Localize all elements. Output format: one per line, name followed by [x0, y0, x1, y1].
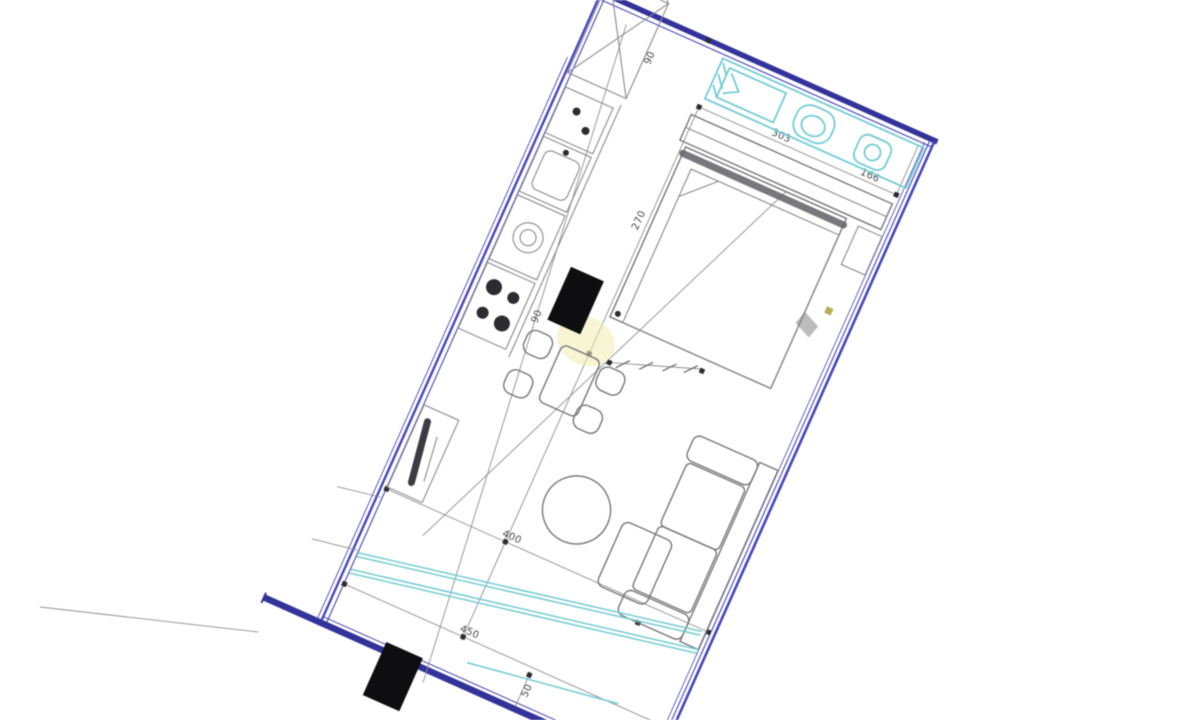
- dimension-label: 270: [630, 209, 648, 232]
- floor-plan-drawing: 303 166 90 270 90 400 450 50: [0, 0, 1200, 720]
- sofa-armrest: [685, 434, 760, 487]
- dimension-chain-vertical: [461, 107, 699, 641]
- node-dots: [338, 0, 932, 720]
- ottoman: [596, 520, 674, 606]
- duvet-fold: [679, 169, 719, 209]
- headboard-band: [683, 153, 844, 225]
- burner: [475, 305, 491, 321]
- bed-corner-dot: [614, 310, 622, 318]
- coffee-table-round: [532, 465, 622, 555]
- dining-chair: [521, 328, 556, 362]
- tv-console: [387, 405, 458, 503]
- wardrobe-cross: [568, 0, 696, 99]
- floor-plan-canvas: 303 166 90 270 90 400 450 50: [0, 0, 1200, 720]
- nightstand-outline: [841, 226, 882, 275]
- wall-tv: [402, 422, 436, 483]
- tv-cabinet: [387, 405, 458, 503]
- sofa-seat-cushion: [631, 525, 718, 614]
- dimension-line-400: [387, 489, 709, 632]
- fixture-detail: [862, 142, 883, 163]
- bed-side-flag: [792, 310, 821, 339]
- construction-line: [423, 114, 786, 614]
- bed-area: [603, 114, 896, 404]
- basin: [716, 68, 786, 122]
- node-dot: [383, 486, 390, 493]
- dining-chair: [570, 402, 605, 436]
- leader-line: [40, 607, 258, 632]
- double-bed: [610, 147, 863, 396]
- dimension-labels: 303 166 90 270 90 400 450 50: [387, 50, 889, 720]
- dimension-label: 90: [642, 50, 657, 67]
- burner: [483, 277, 504, 298]
- dimension-tick: [684, 362, 698, 377]
- structural-column-bottom: [363, 642, 423, 711]
- sofa-seat-cushion: [660, 462, 747, 551]
- dimension-label: 50: [519, 683, 534, 700]
- duvet-outline: [623, 169, 839, 388]
- dimension-label: 400: [500, 528, 523, 546]
- node-dot: [893, 192, 900, 199]
- washer-drum: [517, 227, 538, 248]
- dining-chair: [501, 367, 536, 401]
- sofa-back: [680, 462, 778, 649]
- dimension-label: 90: [530, 308, 545, 325]
- washer-door: [508, 218, 548, 258]
- top-wall: [592, 0, 937, 142]
- rotated-plan-group: 303 166 90 270 90 400 450 50: [244, 0, 974, 720]
- construction-line: [348, 24, 701, 682]
- node-dot: [696, 104, 703, 111]
- glazing-line-short: [467, 641, 618, 720]
- dimension-chain-top: [699, 107, 896, 195]
- toilet-bowl: [798, 112, 828, 140]
- left-wall-outer-face: [316, 57, 567, 622]
- olive-marker: [824, 306, 833, 315]
- node-dot: [341, 581, 348, 588]
- burner: [491, 313, 512, 334]
- burner: [505, 290, 521, 306]
- knob: [571, 106, 582, 117]
- tick-dimension-line: [609, 333, 702, 398]
- dimension-label: 450: [458, 623, 481, 641]
- node-dot: [526, 672, 533, 679]
- knob: [580, 126, 591, 137]
